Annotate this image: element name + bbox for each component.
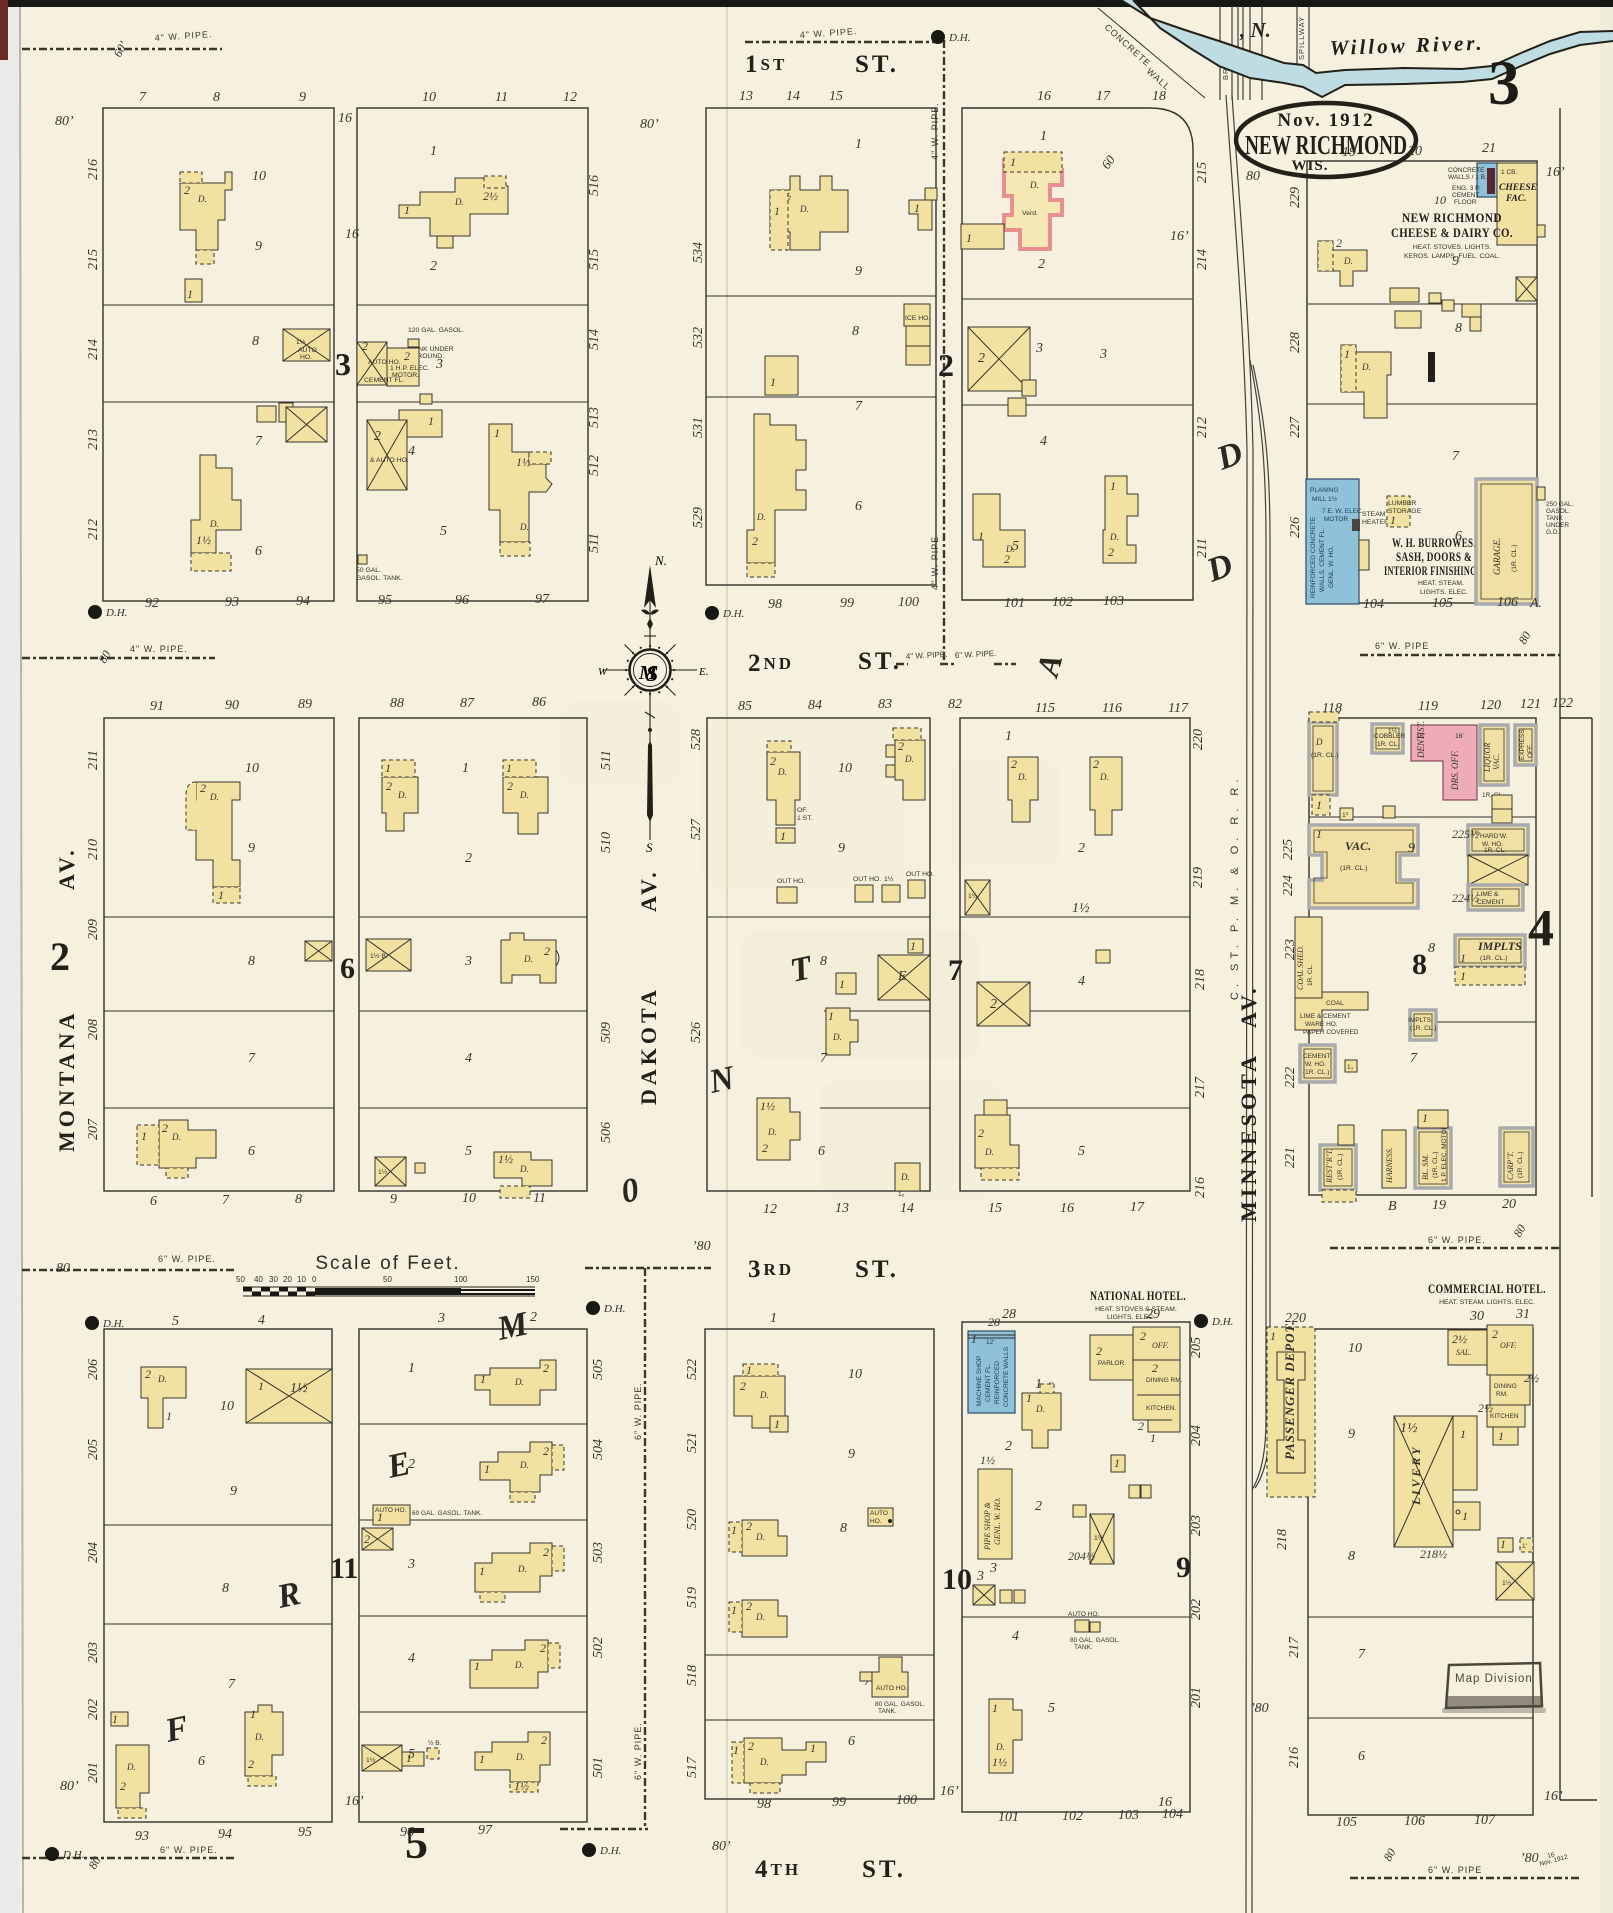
svg-text:10: 10 xyxy=(422,90,436,105)
svg-text:OFF.: OFF. xyxy=(1152,1341,1169,1350)
svg-text:250 GAL.: 250 GAL. xyxy=(1546,501,1574,508)
svg-text:10: 10 xyxy=(462,1191,476,1206)
svg-text:21: 21 xyxy=(1482,141,1496,156)
svg-text:50: 50 xyxy=(236,1275,245,1284)
svg-text:2: 2 xyxy=(1093,757,1099,771)
svg-text:4: 4 xyxy=(408,1651,415,1666)
svg-text:517: 517 xyxy=(685,1756,700,1778)
svg-text:11: 11 xyxy=(495,90,508,105)
svg-text:103: 103 xyxy=(1103,594,1124,609)
svg-text:2: 2 xyxy=(544,944,550,958)
svg-text:1½: 1½ xyxy=(1502,1579,1512,1587)
svg-text:NEW RICHMOND: NEW RICHMOND xyxy=(1245,130,1407,160)
svg-text:PLANING: PLANING xyxy=(1310,487,1339,494)
svg-text:205: 205 xyxy=(1189,1337,1204,1358)
svg-text:(1R. CL.): (1R. CL.) xyxy=(1311,752,1339,759)
svg-text:D.H.: D.H. xyxy=(722,608,744,620)
svg-text:CEMENT: CEMENT xyxy=(1477,899,1504,906)
svg-text:AUTO: AUTO xyxy=(298,347,317,354)
svg-text:2: 2 xyxy=(978,1126,984,1140)
svg-text:DINING: DINING xyxy=(1494,1383,1517,1390)
svg-text:2: 2 xyxy=(898,739,904,753)
svg-text:SAL.: SAL. xyxy=(1456,1348,1471,1357)
svg-text:1: 1 xyxy=(480,1372,486,1386)
svg-text:98: 98 xyxy=(768,597,782,612)
svg-text:1: 1 xyxy=(731,1603,737,1617)
svg-text:1: 1 xyxy=(428,414,434,428)
svg-text:204: 204 xyxy=(86,1542,101,1563)
svg-text:HARD’W.: HARD’W. xyxy=(1480,833,1508,840)
svg-text:19: 19 xyxy=(1342,145,1356,160)
svg-text:LUMBER: LUMBER xyxy=(1388,500,1416,507)
svg-text:1½: 1½ xyxy=(514,1779,529,1793)
svg-text:D: D xyxy=(1315,737,1323,747)
svg-text:2: 2 xyxy=(1096,1344,1102,1358)
svg-text:102: 102 xyxy=(1052,595,1073,610)
svg-text:SPILLWAY: SPILLWAY xyxy=(1297,16,1306,60)
svg-text:6" W. PIPE.: 6" W. PIPE. xyxy=(160,1845,218,1855)
svg-text:16’: 16’ xyxy=(1170,229,1189,244)
svg-text:0: 0 xyxy=(312,1275,317,1284)
svg-text:SASH, DOORS &: SASH, DOORS & xyxy=(1396,549,1472,564)
svg-text:D.: D. xyxy=(519,790,529,800)
svg-text:101: 101 xyxy=(998,1810,1019,1825)
svg-text:18: 18 xyxy=(1152,89,1166,104)
svg-text:6: 6 xyxy=(255,544,262,559)
svg-text:29: 29 xyxy=(1146,1307,1160,1322)
svg-text:ST.: ST. xyxy=(855,1256,899,1283)
svg-text:3: 3 xyxy=(1488,47,1520,118)
svg-text:225: 225 xyxy=(1281,839,1296,860)
svg-text:3: 3 xyxy=(335,346,351,382)
svg-text:503: 503 xyxy=(591,1542,606,1563)
svg-text:D.: D. xyxy=(519,522,529,532)
svg-text:4: 4 xyxy=(1528,900,1554,957)
svg-text:1′: 1′ xyxy=(1522,1543,1528,1550)
svg-text:D.H.: D.H. xyxy=(599,1845,621,1857)
svg-text:6" W. PIPE: 6" W. PIPE xyxy=(1428,1865,1482,1875)
svg-text:2: 2 xyxy=(430,259,437,274)
svg-text:218: 218 xyxy=(1275,1529,1290,1550)
svg-text:MINNESOTA: MINNESOTA xyxy=(1236,1052,1261,1222)
svg-text:115: 115 xyxy=(1035,701,1055,716)
svg-text:532: 532 xyxy=(691,327,706,348)
svg-text:103: 103 xyxy=(1118,1808,1139,1823)
svg-text:6" W. PIPE: 6" W. PIPE xyxy=(1375,641,1429,651)
svg-text:16’: 16’ xyxy=(345,1794,364,1809)
svg-text:2: 2 xyxy=(162,1121,168,1135)
svg-text:528: 528 xyxy=(689,729,704,750)
svg-text:7: 7 xyxy=(222,1193,230,1208)
svg-text:228: 228 xyxy=(1288,332,1303,353)
svg-text:2: 2 xyxy=(530,1310,537,1325)
svg-text:222: 222 xyxy=(1283,1067,1298,1088)
svg-text:50 GAL.: 50 GAL. xyxy=(356,567,381,574)
svg-text:A.: A. xyxy=(1529,596,1542,611)
svg-text:CARP’T.: CARP’T. xyxy=(1506,1151,1515,1180)
svg-text:PAPER COVERED: PAPER COVERED xyxy=(1303,1029,1359,1036)
svg-text:516: 516 xyxy=(587,175,602,196)
svg-text:10: 10 xyxy=(838,761,852,776)
svg-text:D.: D. xyxy=(755,1612,765,1622)
svg-text:80’: 80’ xyxy=(60,1779,79,1794)
svg-text:D.: D. xyxy=(514,1377,524,1387)
svg-text:1½: 1½ xyxy=(296,338,306,346)
svg-text:8: 8 xyxy=(852,324,859,339)
svg-text:510: 510 xyxy=(599,832,614,853)
svg-text:1: 1 xyxy=(187,287,193,301)
svg-text:7: 7 xyxy=(1358,1647,1366,1662)
svg-text:1R. CL.: 1R. CL. xyxy=(1307,964,1314,986)
svg-text:DRS. OFF.: DRS. OFF. xyxy=(1450,750,1460,791)
svg-text:106: 106 xyxy=(1404,1814,1425,1829)
svg-text:CONCRETE WALLS: CONCRETE WALLS xyxy=(1003,1346,1010,1407)
svg-text:9: 9 xyxy=(848,1447,855,1462)
svg-text:3: 3 xyxy=(464,954,472,969)
svg-text:224: 224 xyxy=(1281,875,1296,896)
svg-text:20: 20 xyxy=(283,1275,292,1284)
svg-text:9: 9 xyxy=(255,239,262,254)
svg-text:1½: 1½ xyxy=(1072,901,1090,916)
svg-text:1½: 1½ xyxy=(196,533,211,547)
svg-text:VAC.: VAC. xyxy=(1345,839,1371,853)
svg-text:D.: D. xyxy=(126,1762,136,1772)
svg-text:D.: D. xyxy=(519,1164,529,1174)
svg-text:100: 100 xyxy=(454,1275,468,1284)
svg-text:2: 2 xyxy=(404,349,410,363)
svg-text:1½: 1½ xyxy=(1094,1534,1104,1542)
svg-text:10: 10 xyxy=(245,761,259,776)
svg-text:AUTO: AUTO xyxy=(870,1510,888,1517)
svg-text:9: 9 xyxy=(838,841,845,856)
svg-text:20: 20 xyxy=(1502,1197,1516,1212)
svg-text:1: 1 xyxy=(112,1712,118,1726)
svg-text:2½: 2½ xyxy=(483,189,498,203)
svg-text:ST.: ST. xyxy=(862,1856,906,1883)
svg-text:1: 1 xyxy=(770,1311,777,1326)
svg-text:2: 2 xyxy=(541,1733,547,1747)
svg-text:BL. SM.: BL. SM. xyxy=(1421,1154,1430,1180)
svg-text:116: 116 xyxy=(1102,701,1122,716)
svg-text:221: 221 xyxy=(1283,1147,1298,1168)
svg-text:4: 4 xyxy=(1040,434,1047,449)
svg-text:6: 6 xyxy=(198,1754,205,1769)
svg-text:HEATER: HEATER xyxy=(1362,519,1389,526)
svg-text:211: 211 xyxy=(1195,538,1210,558)
svg-text:KITCHEN.: KITCHEN. xyxy=(1146,1405,1177,1412)
svg-text:AV.: AV. xyxy=(636,868,661,912)
svg-text:16’: 16’ xyxy=(1416,733,1426,740)
svg-text:D.: D. xyxy=(519,1460,529,1470)
svg-text:1 ST.: 1 ST. xyxy=(797,815,813,822)
svg-text:D.: D. xyxy=(799,204,809,214)
svg-text:9: 9 xyxy=(248,841,255,856)
svg-text:HEAT. STOVES. LIGHTS.: HEAT. STOVES. LIGHTS. xyxy=(1413,244,1491,251)
svg-text:2: 2 xyxy=(748,1739,754,1753)
svg-text:D.: D. xyxy=(1361,362,1371,372)
svg-text:2: 2 xyxy=(1138,1419,1144,1433)
svg-text:1: 1 xyxy=(839,977,845,991)
svg-text:7: 7 xyxy=(139,90,147,105)
svg-text:6: 6 xyxy=(1358,1749,1365,1764)
svg-text:CHEESE & DAIRY CO.: CHEESE & DAIRY CO. xyxy=(1391,225,1513,240)
svg-text:9: 9 xyxy=(230,1484,237,1499)
svg-text:1: 1 xyxy=(218,888,224,902)
svg-text:GENL. W. HO.: GENL. W. HO. xyxy=(1328,546,1335,588)
svg-text:202: 202 xyxy=(1189,1599,1204,1620)
svg-text:6: 6 xyxy=(848,1734,855,1749)
svg-text:1: 1 xyxy=(1010,155,1016,169)
svg-text:8: 8 xyxy=(248,954,255,969)
svg-text:C. ST. P. M. & O. R. R.: C. ST. P. M. & O. R. R. xyxy=(1229,775,1241,1000)
svg-text:11: 11 xyxy=(330,1552,358,1585)
svg-text:9: 9 xyxy=(855,264,862,279)
svg-text:203: 203 xyxy=(1189,1515,1204,1536)
svg-text:511: 511 xyxy=(599,750,614,770)
svg-text:D.H.: D.H. xyxy=(948,32,970,44)
svg-text:1: 1 xyxy=(1462,1509,1468,1523)
svg-text:MOTOR: MOTOR xyxy=(1324,516,1348,523)
svg-text:511: 511 xyxy=(587,533,602,553)
svg-text:1: 1 xyxy=(430,144,437,159)
svg-text:7: 7 xyxy=(1410,1051,1418,1066)
svg-text:3: 3 xyxy=(407,1557,415,1572)
svg-text:HARNESS.: HARNESS. xyxy=(1385,1147,1394,1184)
svg-text:10: 10 xyxy=(1348,1341,1362,1356)
svg-text:86: 86 xyxy=(532,695,546,710)
svg-text:D.: D. xyxy=(197,194,207,204)
svg-text:216: 216 xyxy=(1287,1747,1302,1768)
svg-text:6: 6 xyxy=(150,1194,157,1209)
svg-text:1: 1 xyxy=(910,939,916,953)
svg-text:D.H.: D.H. xyxy=(105,607,127,619)
svg-text:1: 1 xyxy=(774,1417,780,1431)
svg-text:2: 2 xyxy=(386,779,392,793)
svg-text:214: 214 xyxy=(86,339,101,360)
svg-text:4" W. PIPE.: 4" W. PIPE. xyxy=(930,102,940,160)
svg-text:RM.: RM. xyxy=(1496,1391,1508,1398)
svg-text:99: 99 xyxy=(840,596,854,611)
svg-text:90: 90 xyxy=(225,698,239,713)
svg-text:1: 1 xyxy=(780,829,786,843)
svg-text:10: 10 xyxy=(252,169,266,184)
svg-text:D.: D. xyxy=(759,1390,769,1400)
svg-text:HEAT. STOVES & STEAM.: HEAT. STOVES & STEAM. xyxy=(1095,1306,1177,1313)
svg-text:60 GAL. GASOL. TANK.: 60 GAL. GASOL. TANK. xyxy=(412,1510,482,1517)
svg-text:1: 1 xyxy=(479,1752,485,1766)
svg-text:1: 1 xyxy=(1316,798,1322,812)
svg-text:217: 217 xyxy=(1287,1636,1302,1658)
svg-text:ICE HO.: ICE HO. xyxy=(905,315,930,322)
svg-text:(1R. CL.): (1R. CL.) xyxy=(1517,1152,1524,1178)
svg-text:5: 5 xyxy=(172,1314,179,1329)
svg-text:W. HO.: W. HO. xyxy=(1305,1061,1326,1068)
svg-text:DAKOTA: DAKOTA xyxy=(636,986,661,1105)
svg-text:9: 9 xyxy=(390,1192,397,1207)
svg-text:1: 1 xyxy=(506,761,512,775)
svg-text:D.: D. xyxy=(767,1127,777,1137)
svg-text:CEMENT: CEMENT xyxy=(1303,1053,1330,1060)
svg-text:D.: D. xyxy=(209,519,219,529)
svg-text:17: 17 xyxy=(1130,1200,1145,1215)
svg-text:2: 2 xyxy=(200,781,206,795)
svg-text:4: 4 xyxy=(408,444,415,459)
svg-text:96: 96 xyxy=(455,593,469,608)
svg-text:1: 1 xyxy=(774,204,780,218)
svg-text:93: 93 xyxy=(225,595,239,610)
svg-text:D.H.: D.H. xyxy=(62,1849,84,1861)
svg-text:7: 7 xyxy=(248,1051,256,1066)
svg-text:101: 101 xyxy=(1004,596,1025,611)
svg-text:CONCRETE: CONCRETE xyxy=(1448,167,1485,174)
svg-text:92: 92 xyxy=(145,596,159,611)
svg-text:215: 215 xyxy=(86,249,101,270)
svg-text:514: 514 xyxy=(587,329,602,350)
svg-text:1: 1 xyxy=(258,1379,264,1393)
svg-text:D.: D. xyxy=(254,1732,264,1742)
svg-text:4: 4 xyxy=(1078,974,1085,989)
svg-text:(1R. CL.): (1R. CL.) xyxy=(1480,955,1508,962)
svg-text:13: 13 xyxy=(835,1201,849,1216)
svg-text:AV.: AV. xyxy=(54,846,79,890)
svg-text:204½: 204½ xyxy=(1068,1549,1095,1563)
svg-text:5: 5 xyxy=(408,1747,415,1762)
svg-text:PARLOR.: PARLOR. xyxy=(1098,1360,1126,1367)
svg-text:1½: 1½ xyxy=(498,1152,513,1166)
svg-text:2: 2 xyxy=(746,1599,752,1613)
svg-text:1: 1 xyxy=(731,1523,737,1537)
svg-text:W: W xyxy=(598,666,608,678)
svg-text:D.H.: D.H. xyxy=(102,1318,124,1330)
svg-text:1: 1 xyxy=(385,761,391,775)
svg-text:2: 2 xyxy=(1140,1329,1146,1343)
svg-text:509: 509 xyxy=(599,1022,614,1043)
svg-text:TANK.: TANK. xyxy=(1074,1644,1093,1651)
svg-text:D.: D. xyxy=(1029,180,1039,190)
svg-text:14: 14 xyxy=(900,1201,914,1216)
svg-text:D.: D. xyxy=(1343,256,1353,266)
svg-text:12: 12 xyxy=(763,1202,777,1217)
svg-text:D.: D. xyxy=(756,512,766,522)
svg-text:WARE HO.: WARE HO. xyxy=(1305,1021,1338,1028)
svg-text:D.: D. xyxy=(1109,532,1119,542)
svg-text:6: 6 xyxy=(818,1144,825,1159)
svg-text:212: 212 xyxy=(86,519,101,540)
svg-text:1: 1 xyxy=(1422,1111,1428,1125)
svg-text:526: 526 xyxy=(689,1022,704,1043)
svg-text:8: 8 xyxy=(840,1521,847,1536)
svg-text:REST’R’T.: REST’R’T. xyxy=(1325,1149,1334,1184)
svg-text:WALLS / 1 B.: WALLS / 1 B. xyxy=(1448,174,1487,181)
svg-text:D.: D. xyxy=(777,767,787,777)
svg-text:10: 10 xyxy=(1434,193,1446,207)
svg-text:10: 10 xyxy=(297,1275,306,1284)
svg-text:1: 1 xyxy=(746,1363,752,1377)
svg-text:10: 10 xyxy=(220,1399,234,1414)
svg-text:2: 2 xyxy=(1078,841,1085,856)
svg-text:224½: 224½ xyxy=(1452,891,1479,905)
svg-text:1½: 1½ xyxy=(884,875,894,883)
svg-text:223: 223 xyxy=(1283,939,1298,960)
svg-text:1: 1 xyxy=(1026,1391,1032,1405)
svg-text:2½: 2½ xyxy=(1452,1332,1467,1346)
svg-text:10: 10 xyxy=(942,1563,972,1596)
svg-text:16’: 16’ xyxy=(1455,733,1465,740)
svg-text:2: 2 xyxy=(978,351,985,366)
svg-text:1: 1 xyxy=(828,1009,834,1023)
svg-text:504: 504 xyxy=(591,1439,606,1460)
svg-text:1½: 1½ xyxy=(760,1099,775,1113)
svg-text:1: 1 xyxy=(855,137,862,152)
svg-text:D.: D. xyxy=(517,1564,527,1574)
svg-text:5: 5 xyxy=(1048,1701,1055,1716)
svg-text:D.: D. xyxy=(832,1032,842,1042)
svg-text:8: 8 xyxy=(1455,321,1462,336)
svg-text:89: 89 xyxy=(298,697,312,712)
svg-text:529: 529 xyxy=(691,507,706,528)
svg-text:6: 6 xyxy=(855,499,862,514)
svg-text:N.: N. xyxy=(654,553,667,568)
svg-text:2: 2 xyxy=(507,779,513,793)
svg-text:E: E xyxy=(897,969,907,984)
svg-text:96: 96 xyxy=(400,1825,414,1840)
svg-text:2: 2 xyxy=(1004,552,1010,566)
svg-text:15: 15 xyxy=(829,89,843,104)
svg-text:5: 5 xyxy=(1078,1144,1085,1159)
svg-text:106: 106 xyxy=(1497,595,1518,610)
svg-text:7 E. W. ELEC.: 7 E. W. ELEC. xyxy=(1322,508,1364,515)
svg-text:531: 531 xyxy=(691,417,706,438)
svg-text:1: 1 xyxy=(1390,513,1396,527)
svg-text:2: 2 xyxy=(762,1141,768,1155)
svg-text:2: 2 xyxy=(770,754,776,768)
svg-text:7: 7 xyxy=(820,1051,828,1066)
svg-text:7: 7 xyxy=(855,399,863,414)
svg-text:2: 2 xyxy=(543,1444,549,1458)
svg-text:3: 3 xyxy=(1099,347,1107,362)
svg-text:NEW RICHMOND: NEW RICHMOND xyxy=(1402,210,1502,225)
svg-text:1½: 1½ xyxy=(378,1168,388,1176)
svg-text:501: 501 xyxy=(591,1757,606,1778)
svg-text:88: 88 xyxy=(390,696,404,711)
svg-text:80’: 80’ xyxy=(55,114,74,129)
svg-text:94: 94 xyxy=(296,594,310,609)
svg-text:1½: 1½ xyxy=(290,1381,308,1396)
svg-text:REINFORCED CONCRETE: REINFORCED CONCRETE xyxy=(1310,516,1317,598)
svg-text:LIQUOR: LIQUOR xyxy=(1483,743,1492,773)
svg-text:1½: 1½ xyxy=(968,892,978,900)
svg-text:D.: D. xyxy=(900,1172,910,1182)
svg-text:97: 97 xyxy=(535,592,550,607)
svg-text:1½ B.: 1½ B. xyxy=(370,952,388,960)
svg-text:D.: D. xyxy=(514,1660,524,1670)
svg-text:100: 100 xyxy=(896,1793,917,1808)
svg-text:S: S xyxy=(646,661,658,686)
svg-text:1: 1 xyxy=(1316,827,1322,841)
svg-text:OF.: OF. xyxy=(797,807,808,814)
svg-text:2: 2 xyxy=(120,1779,126,1793)
svg-text:TANK: TANK xyxy=(1546,515,1564,522)
svg-text:80: 80 xyxy=(56,1261,70,1276)
svg-text:40: 40 xyxy=(254,1275,263,1284)
svg-text:2: 2 xyxy=(938,347,954,383)
svg-text:PASSENGER DEPOT.: PASSENGER DEPOT. xyxy=(1282,1320,1297,1460)
svg-text:’80: ’80 xyxy=(1250,1701,1269,1716)
svg-text:1: 1 xyxy=(494,426,500,440)
svg-text:85: 85 xyxy=(738,699,752,714)
svg-text:4" W. PIPE.: 4" W. PIPE. xyxy=(130,644,188,654)
svg-text:1³: 1³ xyxy=(1342,812,1349,819)
